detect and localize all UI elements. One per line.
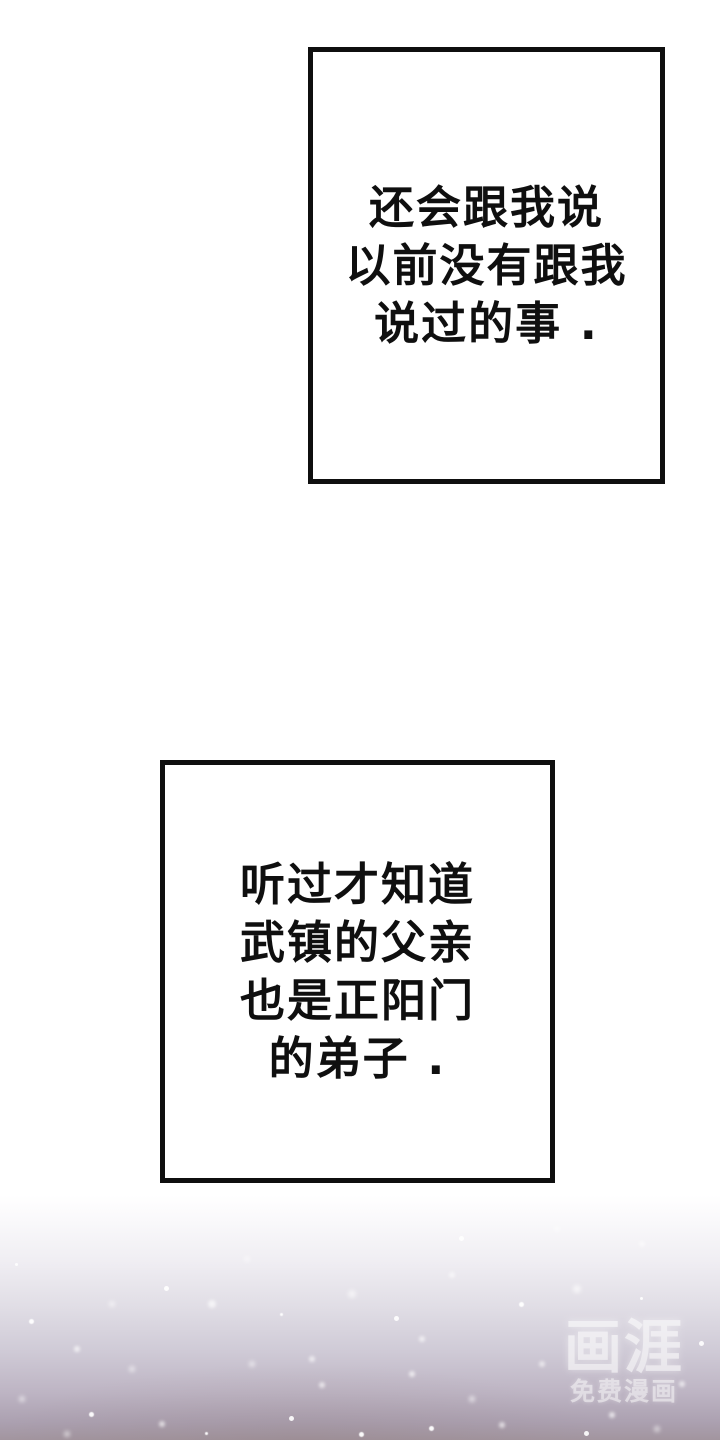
caption-line: 还会跟我说: [345, 179, 627, 237]
huaya-tagline: 免费漫画: [544, 1379, 704, 1405]
snow-gradient-scene: 画涯 免费漫画: [0, 1195, 720, 1440]
caption-line: 武镇的父亲: [240, 914, 475, 972]
caption-line: 的弟子 .: [240, 1030, 475, 1088]
caption-line: 以前没有跟我: [345, 237, 627, 295]
caption-text-bottom: 听过才知道 武镇的父亲 也是正阳门 的弟子 .: [240, 856, 475, 1088]
caption-line: 也是正阳门: [240, 972, 475, 1030]
snow-specks-soft: [0, 1195, 4, 1199]
comic-page: 还会跟我说 以前没有跟我 说过的事 . 听过才知道 武镇的父亲 也是正阳门 的弟…: [0, 0, 720, 1440]
huaya-logo-text: 画涯: [544, 1317, 704, 1377]
caption-text-top: 还会跟我说 以前没有跟我 说过的事 .: [345, 179, 627, 353]
caption-line: 听过才知道: [240, 856, 475, 914]
caption-line: 说过的事 .: [345, 295, 627, 353]
caption-panel-top: 还会跟我说 以前没有跟我 说过的事 .: [308, 47, 665, 484]
huaya-watermark: 画涯 免费漫画: [544, 1317, 704, 1405]
caption-panel-bottom: 听过才知道 武镇的父亲 也是正阳门 的弟子 .: [160, 760, 555, 1183]
